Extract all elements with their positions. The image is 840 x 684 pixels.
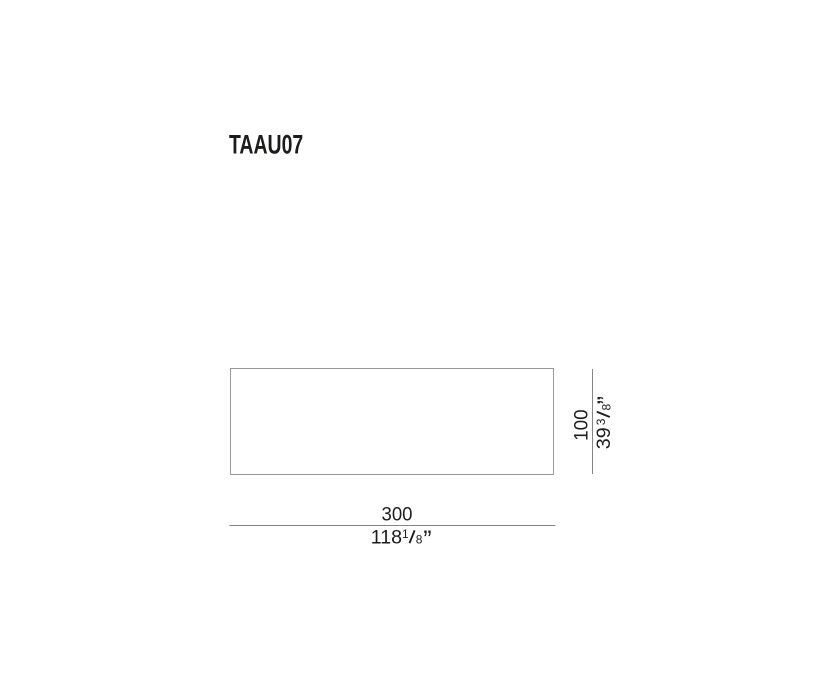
svg-text:300: 300 — [382, 504, 413, 526]
svg-text:TAAU07: TAAU07 — [229, 128, 303, 159]
svg-text:”: ” — [593, 396, 621, 404]
svg-text:100: 100 — [571, 409, 593, 441]
svg-text:39: 39 — [593, 427, 615, 449]
svg-text:8: 8 — [416, 533, 423, 547]
svg-text:118: 118 — [371, 527, 402, 549]
svg-text:”: ” — [423, 526, 431, 554]
svg-text:1: 1 — [402, 527, 409, 541]
svg-text:3: 3 — [594, 418, 608, 425]
